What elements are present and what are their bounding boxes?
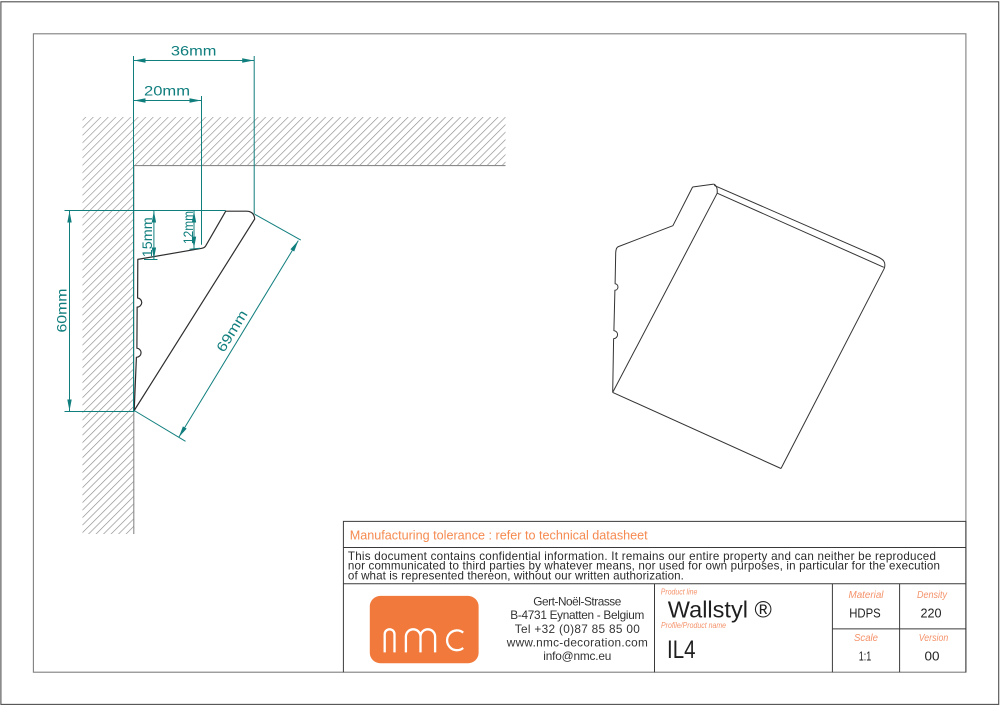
svg-text:Version: Version xyxy=(919,633,949,644)
svg-text:20mm: 20mm xyxy=(144,83,190,99)
svg-text:12mm: 12mm xyxy=(181,211,196,244)
svg-text:220: 220 xyxy=(921,607,942,621)
svg-text:HDPS: HDPS xyxy=(849,607,881,621)
svg-text:info@nmc.eu: info@nmc.eu xyxy=(543,649,611,663)
svg-text:Gert-Noël-Strasse: Gert-Noël-Strasse xyxy=(533,595,621,609)
svg-text:www.nmc-decoration.com: www.nmc-decoration.com xyxy=(506,636,648,650)
svg-text:36mm: 36mm xyxy=(171,43,217,59)
svg-text:Wallstyl ®: Wallstyl ® xyxy=(668,596,772,622)
svg-text:00: 00 xyxy=(925,649,940,663)
svg-text:B-4731 Eynatten - Belgium: B-4731 Eynatten - Belgium xyxy=(510,608,644,622)
svg-text:Tel +32 (0)87 85 85 00: Tel +32 (0)87 85 85 00 xyxy=(515,622,640,636)
svg-text:Material: Material xyxy=(849,590,885,601)
svg-text:Scale: Scale xyxy=(854,633,878,644)
svg-text:1:1: 1:1 xyxy=(859,649,872,663)
svg-text:Product line: Product line xyxy=(661,587,698,597)
svg-text:of what is represented thereon: of what is represented thereon, without … xyxy=(348,569,684,582)
svg-text:IL4: IL4 xyxy=(667,636,696,664)
svg-text:69mm: 69mm xyxy=(213,307,251,355)
svg-text:60mm: 60mm xyxy=(53,289,69,333)
svg-text:Density: Density xyxy=(917,590,948,601)
svg-text:Manufacturing tolerance : refe: Manufacturing tolerance : refer to techn… xyxy=(350,527,648,542)
svg-text:Profile/Product name: Profile/Product name xyxy=(661,620,726,630)
svg-text:15mm: 15mm xyxy=(140,217,155,257)
